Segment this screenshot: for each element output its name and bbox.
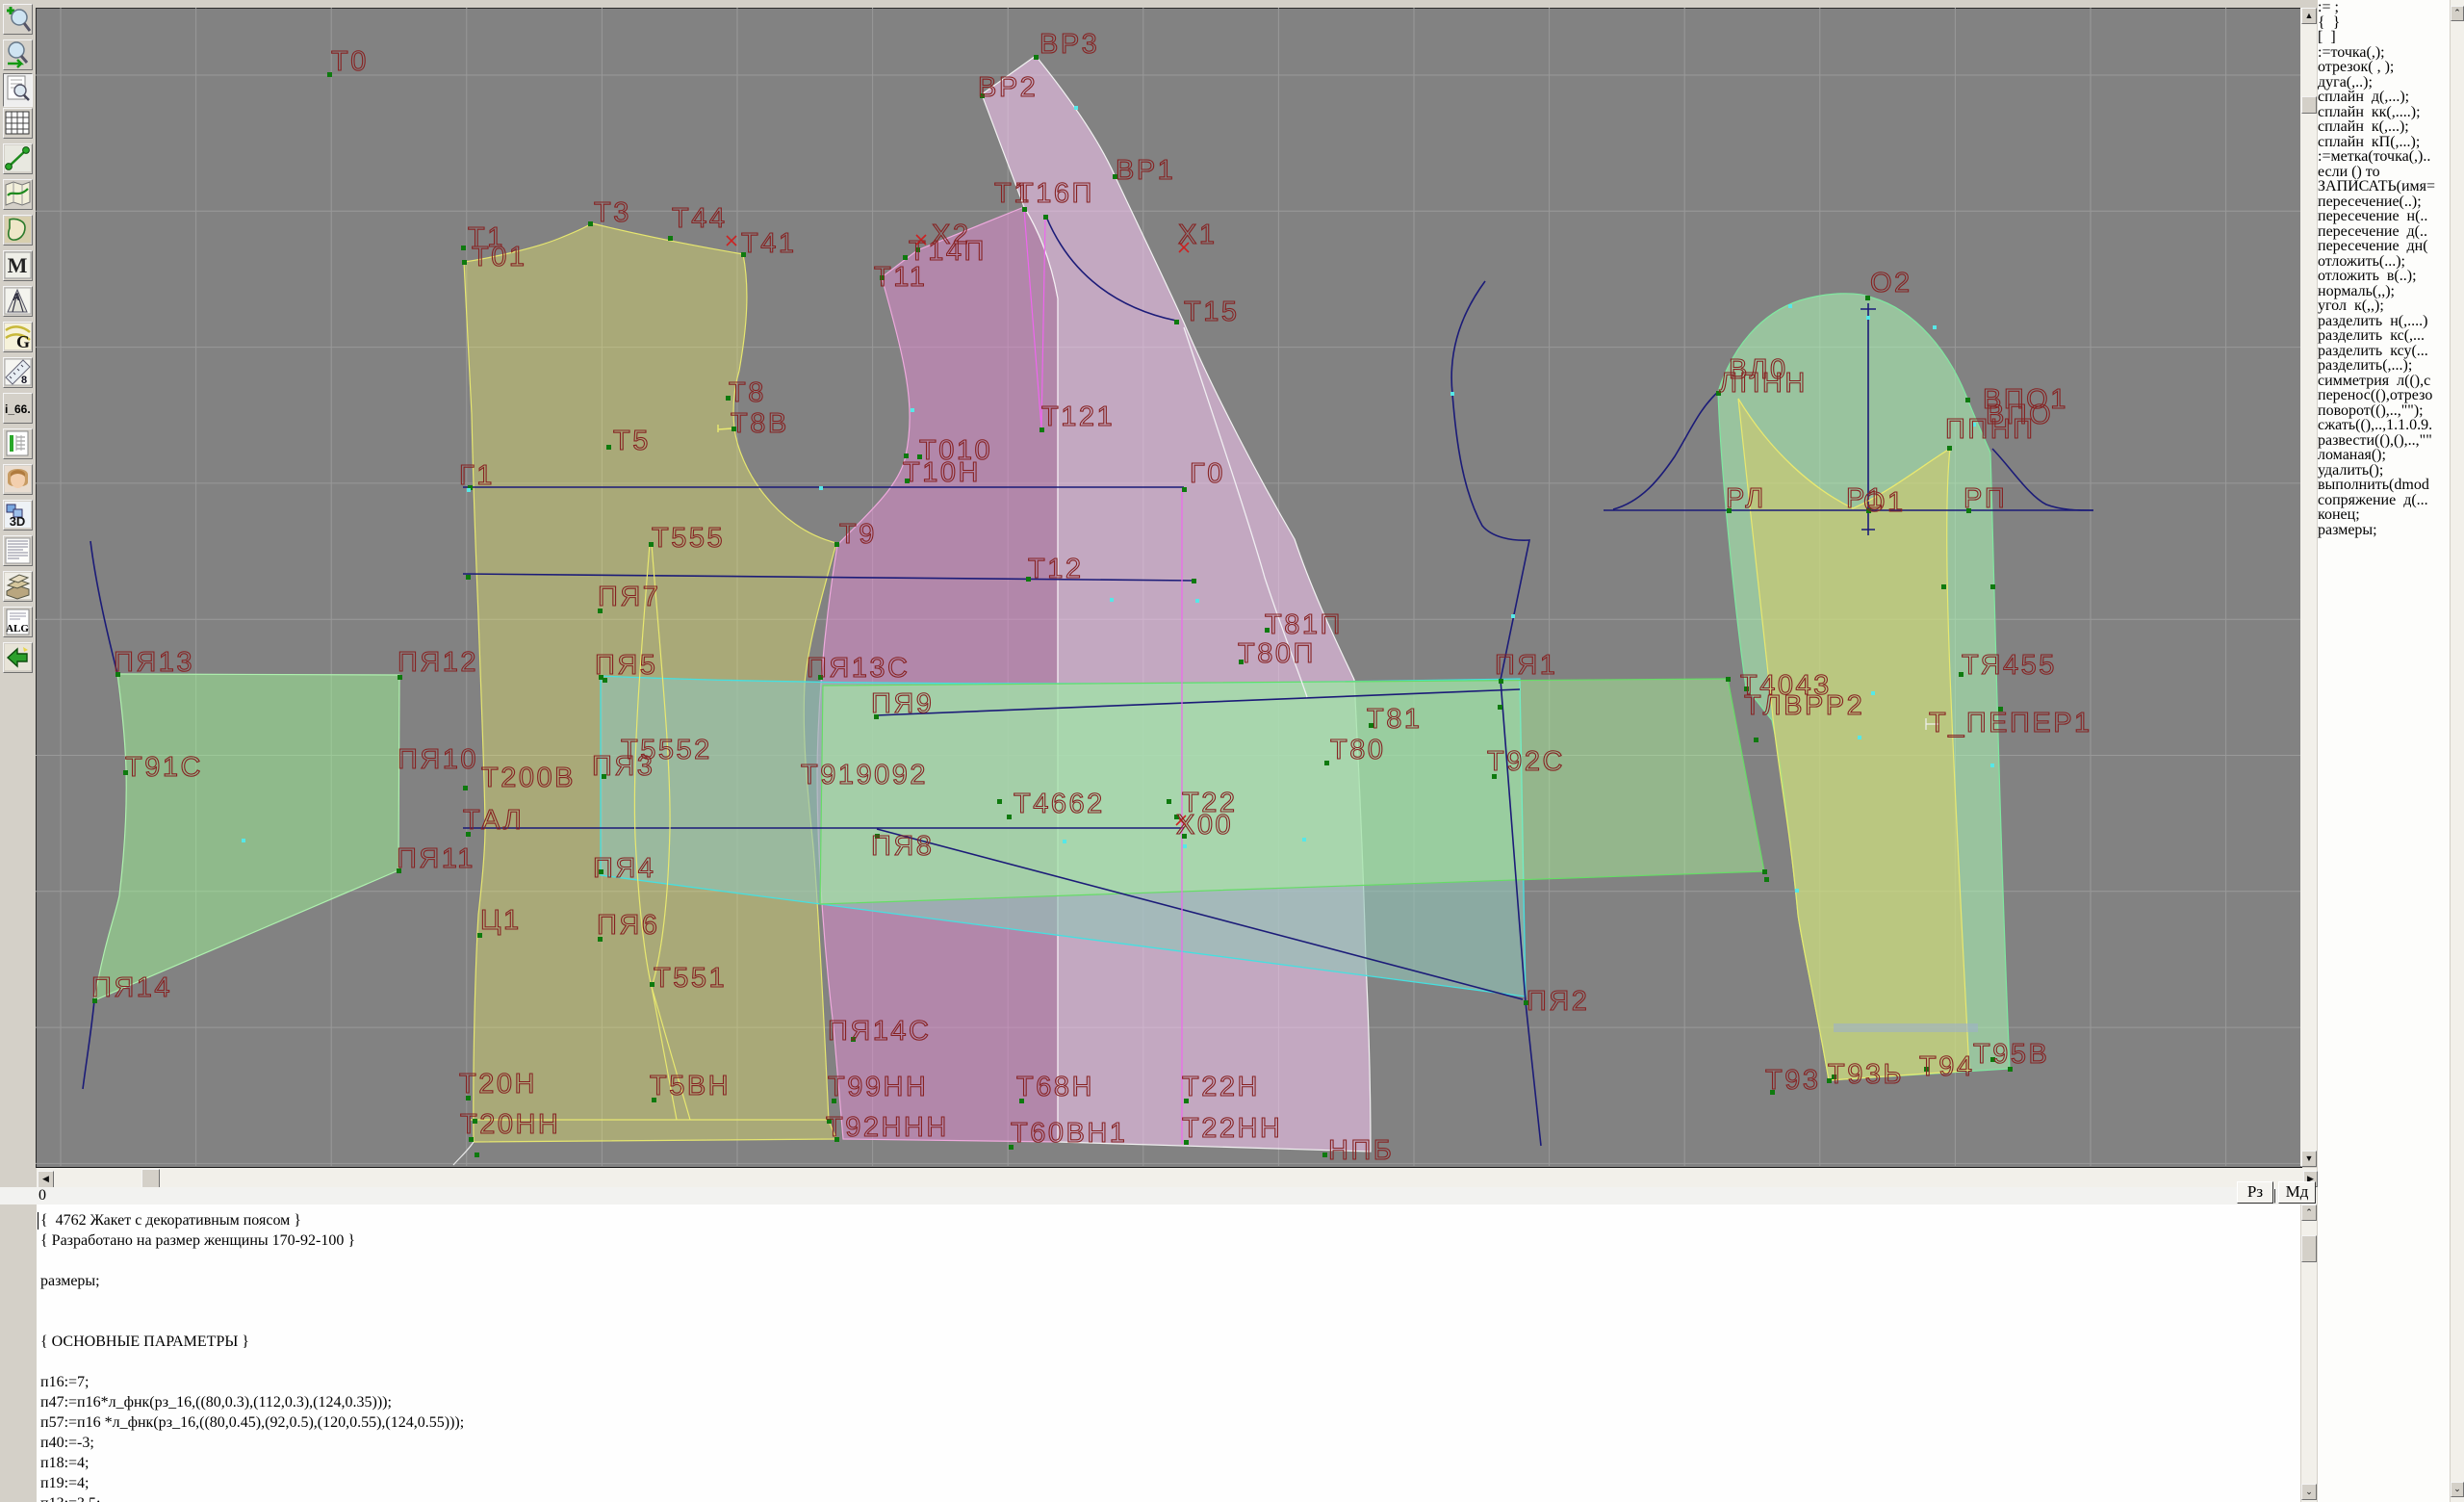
svg-text:Т8В: Т8В [731,408,789,439]
svg-text:ПЯ6: ПЯ6 [597,910,659,941]
svg-text:ТЯ455: ТЯ455 [1962,650,2057,681]
svg-text:Т10Н: Т10Н [903,457,981,488]
svg-text:Г0: Г0 [1190,458,1225,489]
svg-text:О2: О2 [1870,268,1912,298]
svg-text:Т92ННН: Т92ННН [826,1112,949,1143]
svg-text:Т93Ь: Т93Ь [1828,1059,1904,1090]
svg-text:Т68Н: Т68Н [1016,1072,1094,1102]
svg-text:Т3: Т3 [594,197,631,228]
svg-text:Т0: Т0 [331,46,369,77]
svg-text:ЛПНН: ЛПНН [1719,368,1808,399]
svg-text:Т200В: Т200В [481,763,576,793]
svg-text:Т92С: Т92С [1487,746,1565,777]
svg-text:Г1: Г1 [459,460,495,491]
svg-text:Т5ВН: Т5ВН [650,1071,731,1101]
svg-text:Т93: Т93 [1765,1065,1820,1096]
svg-text:ПЯ2: ПЯ2 [1527,986,1589,1017]
svg-text:Т5: Т5 [613,426,651,456]
svg-text:ПЯ13С: ПЯ13С [807,653,911,684]
svg-text:Т81: Т81 [1367,704,1422,735]
svg-text:Т44: Т44 [672,203,727,234]
svg-text:Т81П: Т81П [1265,609,1343,640]
svg-text:Ц1: Ц1 [480,905,522,936]
svg-text:ППНП: ППНП [1945,414,2035,445]
svg-text:ТЛВРР2: ТЛВРР2 [1744,690,1864,721]
svg-text:Т99НН: Т99НН [828,1072,928,1102]
svg-text:Т4662: Т4662 [1014,789,1105,819]
svg-text:M: M [8,253,28,277]
svg-text:ПЯ8: ПЯ8 [871,831,934,862]
svg-text:Т22Н: Т22Н [1182,1072,1260,1102]
svg-text:Т95В: Т95В [1973,1039,2049,1070]
svg-text:О1: О1 [1863,487,1906,518]
svg-text:Т919092: Т919092 [801,760,928,790]
svg-text:ПЯ9: ПЯ9 [871,688,934,719]
svg-text:ПЯ1: ПЯ1 [1495,650,1557,681]
svg-text:ВР3: ВР3 [1039,29,1099,60]
svg-text:ВР2: ВР2 [978,72,1038,103]
svg-text:ПЯ11: ПЯ11 [397,843,475,874]
svg-text:Т_ПЕПЕР1: Т_ПЕПЕР1 [1929,708,2092,738]
svg-text:НПБ: НПБ [1328,1135,1394,1166]
svg-text:Т16П: Т16П [1016,178,1094,209]
svg-text:Т91С: Т91С [125,752,203,783]
svg-text:Т20Н: Т20Н [459,1069,537,1100]
svg-text:Т41: Т41 [741,228,796,259]
svg-text:ПЯ5: ПЯ5 [595,650,657,681]
svg-text:Т9: Т9 [839,519,877,550]
svg-text:Т22НН: Т22НН [1182,1113,1282,1144]
svg-text:i_66.: i_66. [5,402,31,416]
svg-text:РП: РП [1963,483,2007,514]
svg-text:Х1: Х1 [1178,220,1217,250]
svg-text:Т80: Т80 [1330,735,1385,765]
svg-text:ПЯ14: ПЯ14 [91,972,172,1003]
svg-text:Х00: Х00 [1176,810,1233,841]
svg-text:Т94: Т94 [1919,1051,1974,1082]
svg-text:РЛ: РЛ [1726,483,1766,514]
svg-text:ТАЛ: ТАЛ [463,805,524,836]
svg-text:Т11: Т11 [874,262,927,293]
svg-text:Т551: Т551 [654,963,727,994]
svg-text:Т8: Т8 [729,377,766,408]
svg-text:ALG: ALG [6,623,29,634]
svg-text:Т80П: Т80П [1238,638,1316,669]
svg-text:Т20НН: Т20НН [460,1109,560,1140]
svg-text:8: 8 [21,375,27,386]
svg-text:ПЯ4: ПЯ4 [593,853,655,884]
svg-text:Т15: Т15 [1184,297,1239,327]
svg-text:Т121: Т121 [1041,401,1115,432]
svg-text:ПЯ3: ПЯ3 [592,751,654,782]
svg-text:ВР1: ВР1 [1116,155,1175,186]
svg-text:Т12: Т12 [1028,554,1083,584]
svg-text:Т60ВН1: Т60ВН1 [1011,1118,1127,1149]
svg-text:ПЯ14С: ПЯ14С [828,1016,932,1047]
svg-text:G: G [16,332,30,351]
svg-text:Т555: Т555 [652,523,725,554]
svg-text:ПЯ12: ПЯ12 [398,647,478,678]
svg-text:3D: 3D [10,514,26,529]
svg-text:ПЯ7: ПЯ7 [598,582,660,612]
svg-text:ПЯ10: ПЯ10 [398,744,478,775]
svg-text:Т01: Т01 [472,242,526,272]
svg-text:ПЯ13: ПЯ13 [114,647,194,678]
